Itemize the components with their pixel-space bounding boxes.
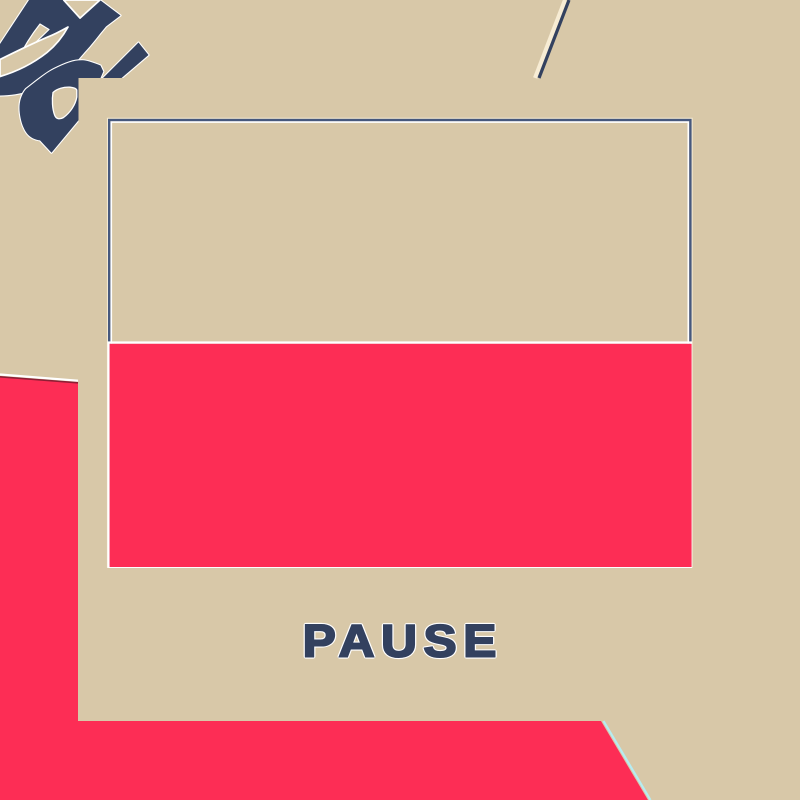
svg-text:PAUSE: PAUSE bbox=[303, 617, 503, 667]
